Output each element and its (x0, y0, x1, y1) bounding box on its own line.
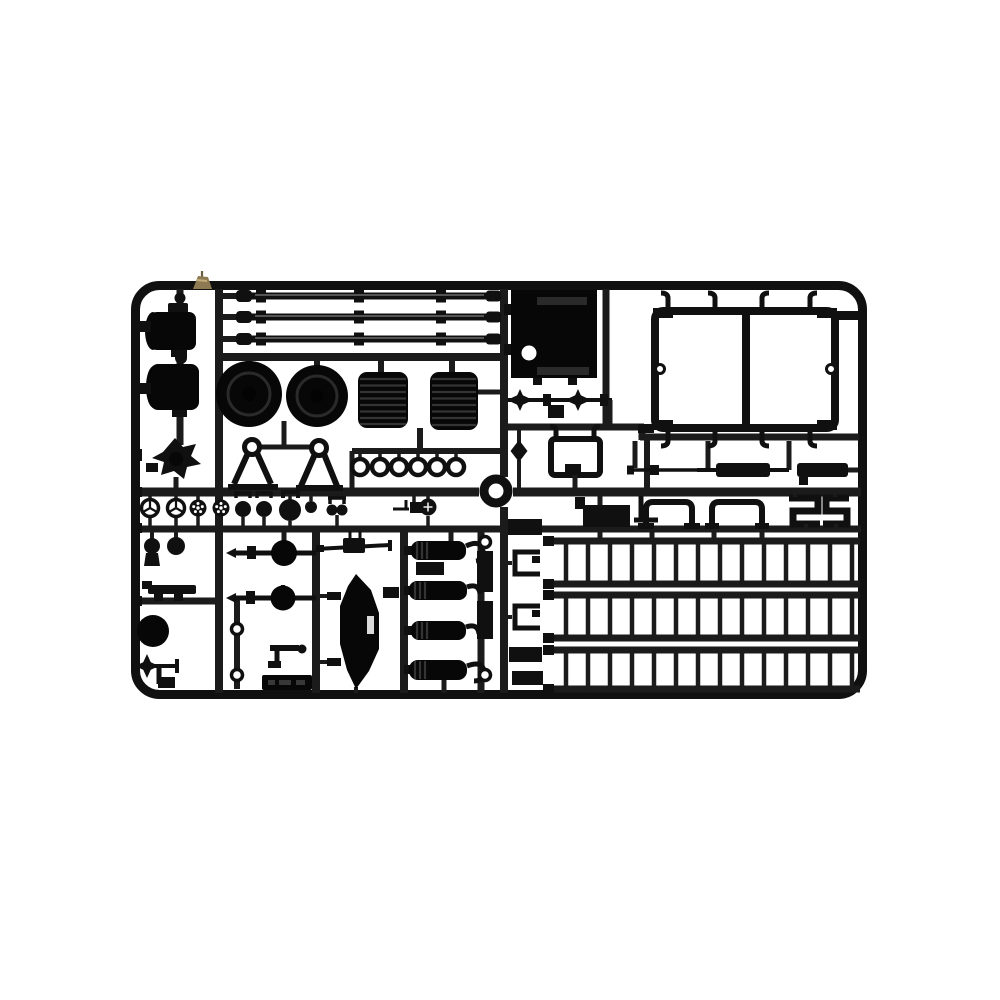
part-ladder-frame-2 (543, 590, 860, 643)
part-channel-staples (575, 496, 769, 527)
part-tow-rod-and-bars (627, 463, 858, 485)
part-small-parts-row (142, 492, 437, 526)
part-double-window-frame (638, 293, 861, 446)
part-a-frames (228, 421, 343, 488)
part-number-plate (262, 675, 312, 690)
part-u-bracket (550, 426, 600, 492)
part-axle-housing-assembly (137, 293, 199, 418)
part-clip-brackets (504, 519, 543, 685)
part-road-tires (216, 357, 348, 427)
tan-gate-fragment (193, 271, 212, 289)
part-ball-axles (226, 529, 316, 611)
part-coil-drums (358, 359, 478, 453)
part-star-sprocket (133, 438, 201, 492)
part-star-couplings (507, 389, 612, 424)
part-z-brackets (789, 492, 849, 529)
part-torsion-rods (223, 290, 506, 346)
part-hull-shield (316, 574, 399, 693)
part-ladder-frame-3 (543, 645, 860, 694)
photo-canvas (0, 0, 1000, 1000)
part-gun-axle (316, 531, 390, 553)
runner-lattice (139, 289, 861, 693)
part-small-rings (352, 451, 464, 475)
part-diamond-knob (511, 427, 528, 492)
part-ladder-frame-1 (543, 536, 860, 589)
part-eyelets-and-elbow (232, 624, 307, 681)
part-large-ring (484, 479, 508, 503)
part-ball-pins (144, 529, 185, 566)
part-hatch-panel (504, 290, 597, 385)
sprue-photo (0, 0, 1000, 1000)
part-solid-disc (135, 615, 169, 647)
